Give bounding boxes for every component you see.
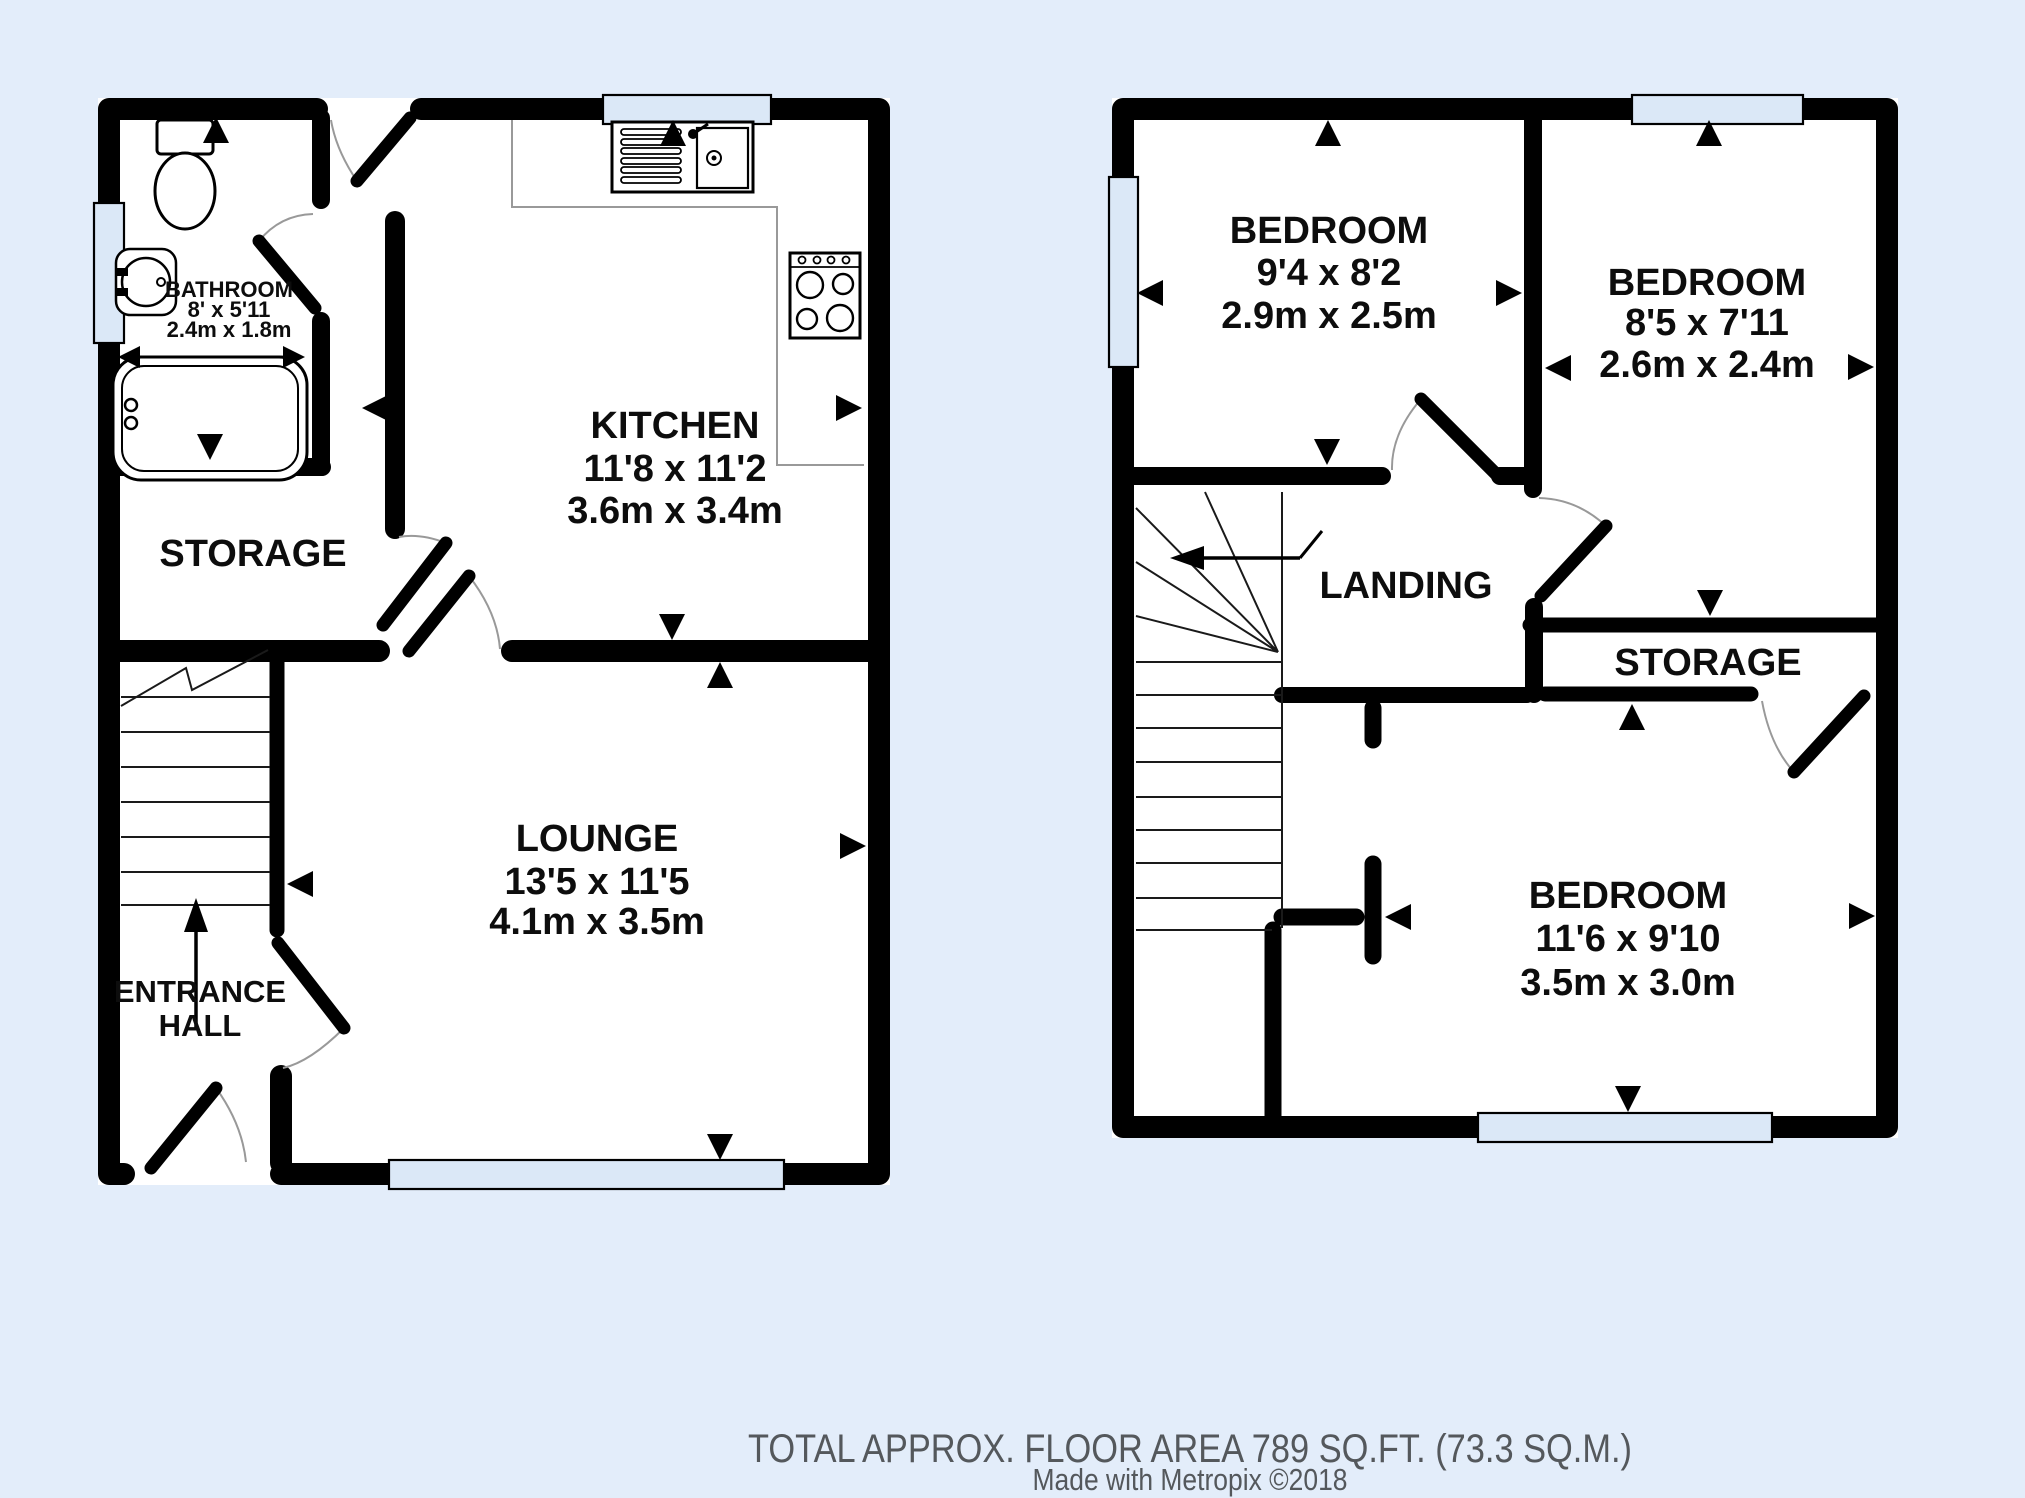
bedroom3-label: BEDROOM [1529,875,1727,917]
landing-label: LANDING [1319,565,1492,607]
credit-text: Made with Metropix ©2018 [1033,1462,1348,1497]
ground-floor-plan: BATHROOM 8' x 5'11 2.4m x 1.8m KITCHEN 1… [94,95,890,1189]
lounge-imperial: 13'5 x 11'5 [504,861,689,903]
bath-tap [125,399,137,411]
kitchen-sink-icon [612,122,753,192]
window [1632,95,1803,124]
sink-tap [117,268,128,276]
entrance-hall-label-line2: HALL [159,1008,242,1043]
bath-tap [125,417,137,429]
floorplan-canvas: BATHROOM 8' x 5'11 2.4m x 1.8m KITCHEN 1… [0,0,2025,1498]
window [1109,177,1138,367]
bathtub-icon [113,357,307,480]
sink-unit [612,122,753,192]
footer: TOTAL APPROX. FLOOR AREA 789 SQ.FT. (73.… [748,1427,1632,1497]
bathroom-metric: 2.4m x 1.8m [167,317,292,342]
kitchen-label: KITCHEN [591,405,760,447]
first-floor-plan: BEDROOM 9'4 x 8'2 2.9m x 2.5m BEDROOM 8'… [1109,95,1898,1142]
bedroom2-metric: 2.6m x 2.4m [1599,344,1814,386]
bedroom2-label: BEDROOM [1608,262,1806,304]
kitchen-imperial: 11'8 x 11'2 [584,448,767,490]
toilet-icon [155,120,215,229]
window [389,1160,784,1189]
bath-outer [113,357,307,480]
storage-ground-label: STORAGE [159,533,346,575]
sink-tap [117,288,128,296]
sink-drain-dot [712,156,717,161]
bedroom1-metric: 2.9m x 2.5m [1221,295,1436,337]
kitchen-metric: 3.6m x 3.4m [567,490,782,532]
bedroom3-metric: 3.5m x 3.0m [1520,962,1735,1004]
sink-tap-base [688,129,698,139]
bedroom2-imperial: 8'5 x 7'11 [1625,302,1789,344]
storage-first-label: STORAGE [1614,642,1801,684]
entrance-hall-label-line1: ENTRANCE [114,974,286,1009]
window [603,95,771,124]
bedroom3-imperial: 11'6 x 9'10 [1535,918,1720,960]
lounge-metric: 4.1m x 3.5m [489,901,704,943]
toilet-cistern [157,120,213,154]
lounge-label: LOUNGE [516,818,679,860]
stove-icon [790,253,860,338]
toilet-bowl [155,153,215,229]
bedroom1-imperial: 9'4 x 8'2 [1257,252,1402,294]
sink-basin [122,258,170,306]
window [1478,1113,1772,1142]
bedroom1-label: BEDROOM [1230,210,1428,252]
